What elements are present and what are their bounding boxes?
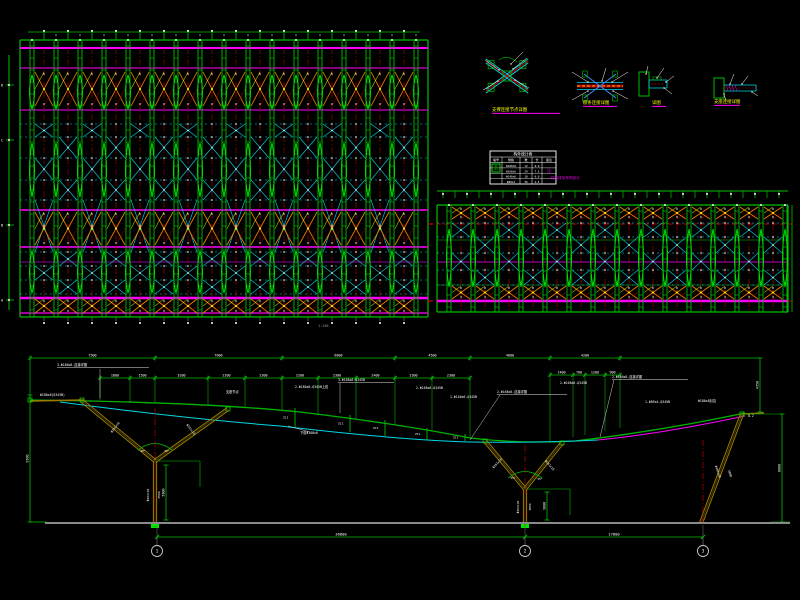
connection-details: 支撑连接节点详图檩条连接详图详图支座连接详图 <box>483 52 758 113</box>
svg-text:5800: 5800 <box>727 470 733 478</box>
svg-text:60°: 60° <box>164 449 169 453</box>
svg-text:D: D <box>1 84 3 88</box>
elevation-section: 7500760068004500480042001800150032002200… <box>26 353 791 556</box>
svg-text:17800: 17800 <box>608 532 620 537</box>
svg-text:注:: 注: <box>547 168 553 173</box>
svg-text:下弦Φ168x6: 下弦Φ168x6 <box>300 430 318 435</box>
svg-text:4500: 4500 <box>428 353 436 357</box>
svg-text:36: 36 <box>524 180 528 184</box>
svg-text:5800: 5800 <box>162 488 166 496</box>
svg-text:7600: 7600 <box>214 353 222 357</box>
svg-text:3-Φ168x8-Q345B: 3-Φ168x8-Q345B <box>338 378 365 382</box>
svg-text:ZC1: ZC1 <box>283 416 289 420</box>
svg-text:ZC1: ZC1 <box>373 426 379 430</box>
svg-text:Φ402x20: Φ402x20 <box>516 500 520 513</box>
svg-text:C: C <box>1 139 3 143</box>
svg-text:18: 18 <box>524 175 528 179</box>
svg-text:55°: 55° <box>537 477 542 481</box>
svg-text:9500: 9500 <box>26 454 30 462</box>
svg-text:2-Φ180x8-连接详图: 2-Φ180x8-连接详图 <box>612 374 642 379</box>
svg-text:ZC1: ZC1 <box>453 436 459 440</box>
svg-text:2300: 2300 <box>259 373 267 377</box>
svg-text:60°: 60° <box>140 449 145 453</box>
svg-text:2400: 2400 <box>371 373 379 377</box>
svg-text:2-Φ180x8-Q345B上弦: 2-Φ180x8-Q345B上弦 <box>295 384 329 389</box>
svg-text:3: 3 <box>702 549 705 555</box>
svg-text:1-Φ89x4-Q345B: 1-Φ89x4-Q345B <box>645 400 670 404</box>
svg-text:24: 24 <box>524 169 528 173</box>
svg-text:Φ168x6: Φ168x6 <box>506 169 516 173</box>
svg-text:4.5: 4.5 <box>535 180 540 184</box>
svg-text:Φ180x8: Φ180x8 <box>506 164 516 168</box>
svg-text:备注: 备注 <box>546 157 552 162</box>
svg-text:B: B <box>1 224 3 228</box>
svg-text:长: 长 <box>535 157 538 162</box>
svg-text:1: 1 <box>156 549 159 555</box>
svg-text:数: 数 <box>524 157 527 162</box>
note-text: 注:拉索详见专项设计 <box>547 168 580 180</box>
svg-text:A: A <box>1 299 4 303</box>
svg-text:Φ402x20: Φ402x20 <box>146 488 150 501</box>
svg-text:构件统计表: 构件统计表 <box>514 152 533 157</box>
parts-table: 构件统计表编号规格数长备注Z1Φ180x8129.0Φ168x6247.5Φ14… <box>490 151 556 184</box>
svg-text:2-Φ168x6-Q345B: 2-Φ168x6-Q345B <box>560 381 587 385</box>
svg-text:7.5: 7.5 <box>535 169 540 173</box>
svg-text:55°: 55° <box>510 476 515 480</box>
svg-text:2300: 2300 <box>333 373 341 377</box>
svg-text:Φ180x8封边: Φ180x8封边 <box>698 398 717 403</box>
svg-text:ZC1: ZC1 <box>415 432 421 436</box>
svg-text:详图: 详图 <box>652 99 661 106</box>
svg-text:ZC1: ZC1 <box>338 422 344 426</box>
svg-text:4350: 4350 <box>756 381 760 389</box>
svg-text:4200: 4200 <box>581 353 589 357</box>
svg-text:6.0: 6.0 <box>535 175 540 179</box>
svg-text:8000: 8000 <box>778 464 782 472</box>
cad-canvas[interactable]: DCBA1:150 支撑连接节点详图檩条连接详图详图支座连接详图 构件统计表编号… <box>0 0 800 600</box>
svg-text:Φ89x4: Φ89x4 <box>507 180 515 184</box>
svg-text:36800: 36800 <box>335 532 347 537</box>
secondary-roof-plan <box>428 191 796 312</box>
svg-text:2-Φ168x6-连接详图: 2-Φ168x6-连接详图 <box>497 389 527 394</box>
svg-text:2300: 2300 <box>447 373 455 377</box>
svg-text:拉索详见专项设计: 拉索详见专项设计 <box>551 175 580 180</box>
svg-text:9.0: 9.0 <box>535 164 540 168</box>
svg-text:Z1: Z1 <box>494 167 498 171</box>
svg-text:檩条连接详图: 檩条连接详图 <box>583 99 610 106</box>
svg-text:12: 12 <box>524 164 528 168</box>
svg-text:700: 700 <box>576 370 582 374</box>
svg-text:1200: 1200 <box>591 370 599 374</box>
svg-text:6800: 6800 <box>334 353 342 357</box>
svg-text:4800: 4800 <box>506 353 514 357</box>
svg-text:Φ140x6: Φ140x6 <box>506 175 516 179</box>
svg-text:支撑连接节点详图: 支撑连接节点详图 <box>492 106 528 113</box>
svg-text:2-Φ168x6-Q345B: 2-Φ168x6-Q345B <box>416 386 443 390</box>
svg-text:1-Φ140x6-Q345B: 1-Φ140x6-Q345B <box>450 395 477 399</box>
svg-text:1800: 1800 <box>111 373 119 377</box>
svg-text:3-Φ180x8-连接详图: 3-Φ180x8-连接详图 <box>57 362 87 367</box>
svg-text:1500: 1500 <box>138 373 146 377</box>
svg-text:3600: 3600 <box>543 502 547 510</box>
svg-text:4500: 4500 <box>157 491 161 498</box>
main-roof-plan: DCBA1:150 <box>1 30 428 328</box>
svg-text:编号: 编号 <box>493 157 499 162</box>
svg-text:1400: 1400 <box>557 370 565 374</box>
svg-text:Φ180x8(Q345B): Φ180x8(Q345B) <box>40 393 65 397</box>
svg-text:1:150: 1:150 <box>318 324 329 328</box>
svg-text:900: 900 <box>609 370 615 374</box>
svg-text:3200: 3200 <box>177 373 185 377</box>
svg-text:规格: 规格 <box>508 157 514 162</box>
svg-text:2: 2 <box>524 549 527 555</box>
svg-text:8.2: 8.2 <box>748 414 754 418</box>
svg-text:7500: 7500 <box>88 353 96 357</box>
svg-text:支座连接详图: 支座连接详图 <box>714 98 741 105</box>
cad-viewport[interactable]: DCBA1:150 支撑连接节点详图檩条连接详图详图支座连接详图 构件统计表编号… <box>0 0 800 600</box>
svg-text:支座节点: 支座节点 <box>226 389 240 394</box>
svg-text:2200: 2200 <box>296 373 304 377</box>
svg-text:2200: 2200 <box>222 373 230 377</box>
svg-text:2300: 2300 <box>409 373 417 377</box>
svg-text:3800: 3800 <box>528 503 532 510</box>
